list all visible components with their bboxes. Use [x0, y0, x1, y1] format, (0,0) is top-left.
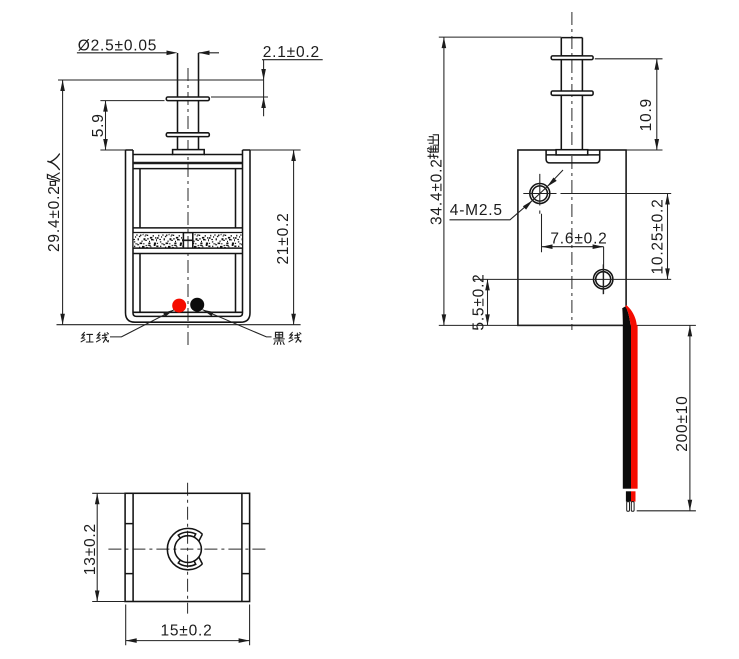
svg-text:10.9: 10.9: [638, 98, 655, 131]
svg-text:7.6±0.2: 7.6±0.2: [550, 231, 607, 248]
svg-text:Ø2.5±0.05: Ø2.5±0.05: [78, 37, 157, 54]
svg-text:10.25±0.2: 10.25±0.2: [650, 198, 667, 274]
svg-text:5.9: 5.9: [90, 113, 107, 137]
svg-text:13±0.2: 13±0.2: [82, 523, 99, 575]
svg-text:21±0.2: 21±0.2: [275, 212, 292, 264]
svg-text:29.4±0.2: 29.4±0.2: [46, 185, 63, 252]
svg-text:34.4±0.2: 34.4±0.2: [429, 158, 446, 225]
svg-text:4-M2.5: 4-M2.5: [450, 202, 503, 219]
svg-text:200±10: 200±10: [674, 395, 691, 451]
svg-text:5.5±0.2: 5.5±0.2: [471, 273, 488, 330]
svg-text:15±0.2: 15±0.2: [160, 623, 212, 640]
svg-text:2.1±0.2: 2.1±0.2: [263, 44, 320, 61]
